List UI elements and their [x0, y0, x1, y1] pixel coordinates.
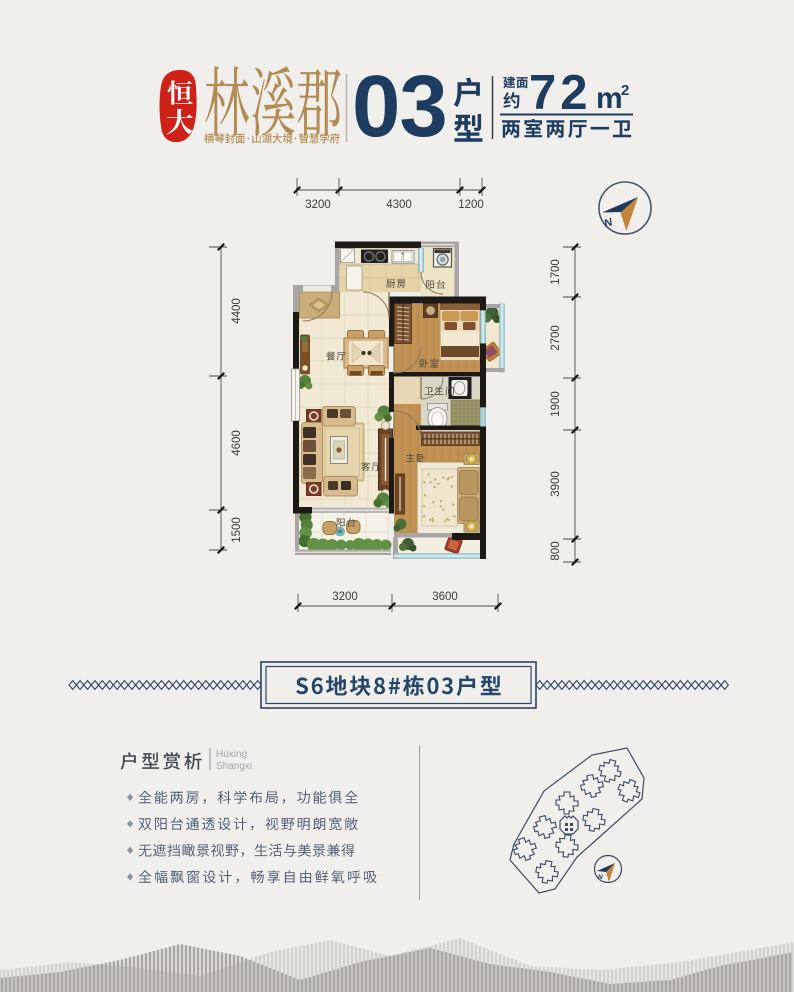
- svg-text:03: 03: [352, 58, 447, 155]
- svg-text:Huxing: Huxing: [216, 749, 247, 760]
- svg-text:72: 72: [529, 66, 592, 120]
- svg-text:1500: 1500: [231, 517, 243, 543]
- svg-text:m: m: [596, 82, 623, 115]
- svg-text:3600: 3600: [432, 591, 458, 603]
- svg-text:1700: 1700: [550, 259, 562, 285]
- svg-text:4300: 4300: [386, 199, 412, 211]
- svg-text:N: N: [598, 874, 603, 881]
- svg-text:1900: 1900: [550, 391, 562, 417]
- svg-text:1200: 1200: [458, 199, 484, 211]
- svg-text:4600: 4600: [231, 430, 243, 456]
- svg-text:3200: 3200: [305, 199, 331, 211]
- svg-text:3900: 3900: [550, 471, 562, 497]
- svg-text:4400: 4400: [231, 298, 243, 324]
- svg-text:3200: 3200: [332, 591, 358, 603]
- svg-text:2700: 2700: [550, 325, 562, 351]
- svg-text:Shangxi: Shangxi: [216, 761, 252, 772]
- svg-text:800: 800: [550, 541, 562, 560]
- svg-text:2: 2: [621, 82, 629, 99]
